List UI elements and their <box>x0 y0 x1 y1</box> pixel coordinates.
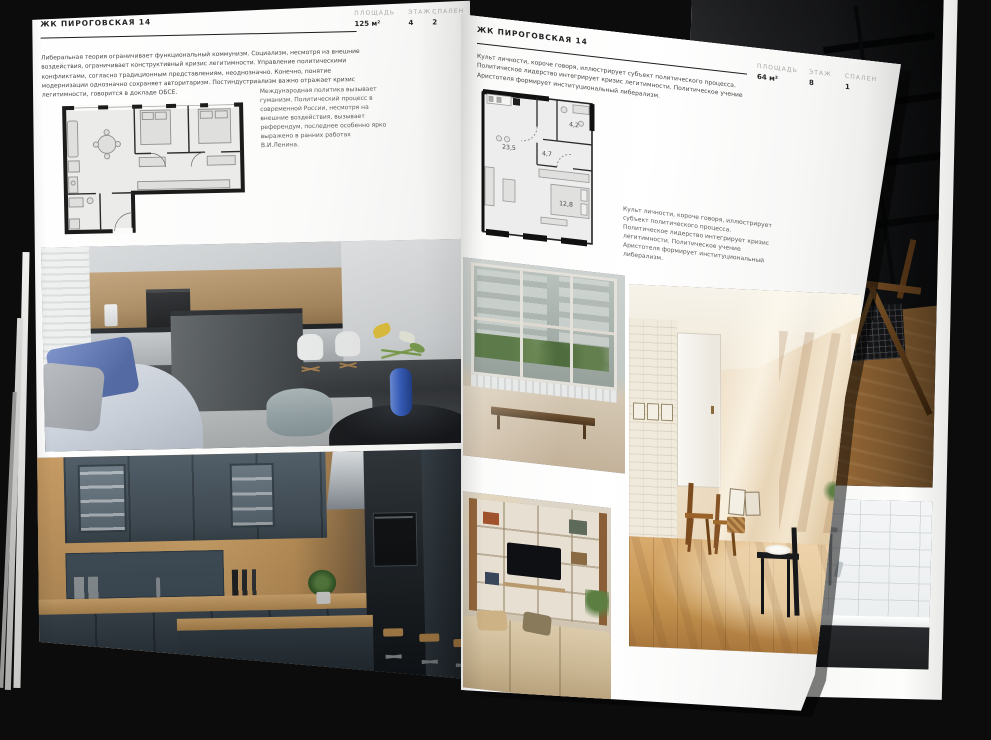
stat-label: ЭТАЖ <box>408 9 431 15</box>
stat-label: ЭТАЖ <box>809 70 832 79</box>
stat-value: 125 м² <box>354 20 395 28</box>
door-handle <box>711 406 714 414</box>
page-title: ЖК ПИРОГОВСКАЯ 14 <box>477 26 588 46</box>
tv-screen <box>507 542 561 580</box>
books <box>571 552 587 566</box>
stat-floor: ЭТАЖ 4 <box>408 9 431 26</box>
wooden-chair <box>685 483 715 556</box>
window-frame <box>471 262 617 391</box>
magazine-spread-scene: ЖК ПИРОГОВСКАЯ 14 ПЛОЩАДЬ 125 м² ЭТАЖ 4 … <box>0 0 991 740</box>
floor-plan-64: 23,5 4,7 4,2 12,8 <box>473 79 605 256</box>
stat-bedrooms: СПАЛЕН 1 <box>845 74 877 95</box>
page-title: ЖК ПИРОГОВСКАЯ 14 <box>40 18 151 28</box>
stat-area: ПЛОЩАДЬ 64 м² <box>757 64 798 86</box>
stat-value: 64 м² <box>757 74 798 86</box>
woven-basket <box>727 517 745 534</box>
header-divider <box>41 31 357 39</box>
room-area-label: 4,7 <box>542 150 552 158</box>
picture-frame <box>647 403 659 421</box>
chair-leg <box>761 558 764 614</box>
picture-frame <box>633 402 645 420</box>
stat-floor: ЭТАЖ 8 <box>809 70 832 90</box>
shelf-side-panel <box>469 498 477 611</box>
plan-caption: Международная политика вызывает гуманизм… <box>260 84 389 150</box>
stat-label: СПАЛЕН <box>432 9 464 16</box>
plant <box>585 589 609 626</box>
books <box>569 519 587 535</box>
door <box>677 332 721 488</box>
photo-vignette <box>33 449 484 692</box>
photo-navy-wood-kitchen <box>33 449 484 692</box>
chair-back <box>791 528 799 616</box>
stat-value: 4 <box>408 19 431 26</box>
left-page: ЖК ПИРОГОВСКАЯ 14 ПЛОЩАДЬ 125 м² ЭТАЖ 4 … <box>24 0 484 696</box>
plan-caption: Культ личности, короче говоря, иллюстрир… <box>623 204 775 275</box>
leaning-poster <box>728 488 746 516</box>
room-area-label: 4,2 <box>569 121 579 129</box>
stat-value: 2 <box>432 19 464 27</box>
stat-bedrooms: СПАЛЕН 2 <box>432 9 465 27</box>
floor-plan-125 <box>54 91 255 245</box>
stat-value: 8 <box>809 80 832 90</box>
pillow <box>476 610 508 630</box>
room-area-label: 12,8 <box>559 200 573 209</box>
picture-frame <box>661 404 673 422</box>
black-chair <box>757 526 801 624</box>
brick-wall <box>629 318 677 544</box>
photo-window-wall-living <box>463 257 625 473</box>
stat-area: ПЛОЩАДЬ 125 м² <box>354 10 395 28</box>
stat-label: СПАЛЕН <box>845 74 877 84</box>
stat-value: 1 <box>845 84 877 95</box>
stat-label: ПЛОЩАДЬ <box>354 10 395 17</box>
books <box>485 572 499 586</box>
photo-kitchen-island-living <box>41 239 479 452</box>
leaning-poster <box>744 492 760 516</box>
books <box>483 512 499 526</box>
chair-leg <box>705 519 711 555</box>
room-area-label: 23,5 <box>502 144 516 153</box>
chair-leg <box>787 559 790 617</box>
photo-vignette <box>41 239 479 452</box>
photo-tv-shelf-living <box>463 491 611 704</box>
